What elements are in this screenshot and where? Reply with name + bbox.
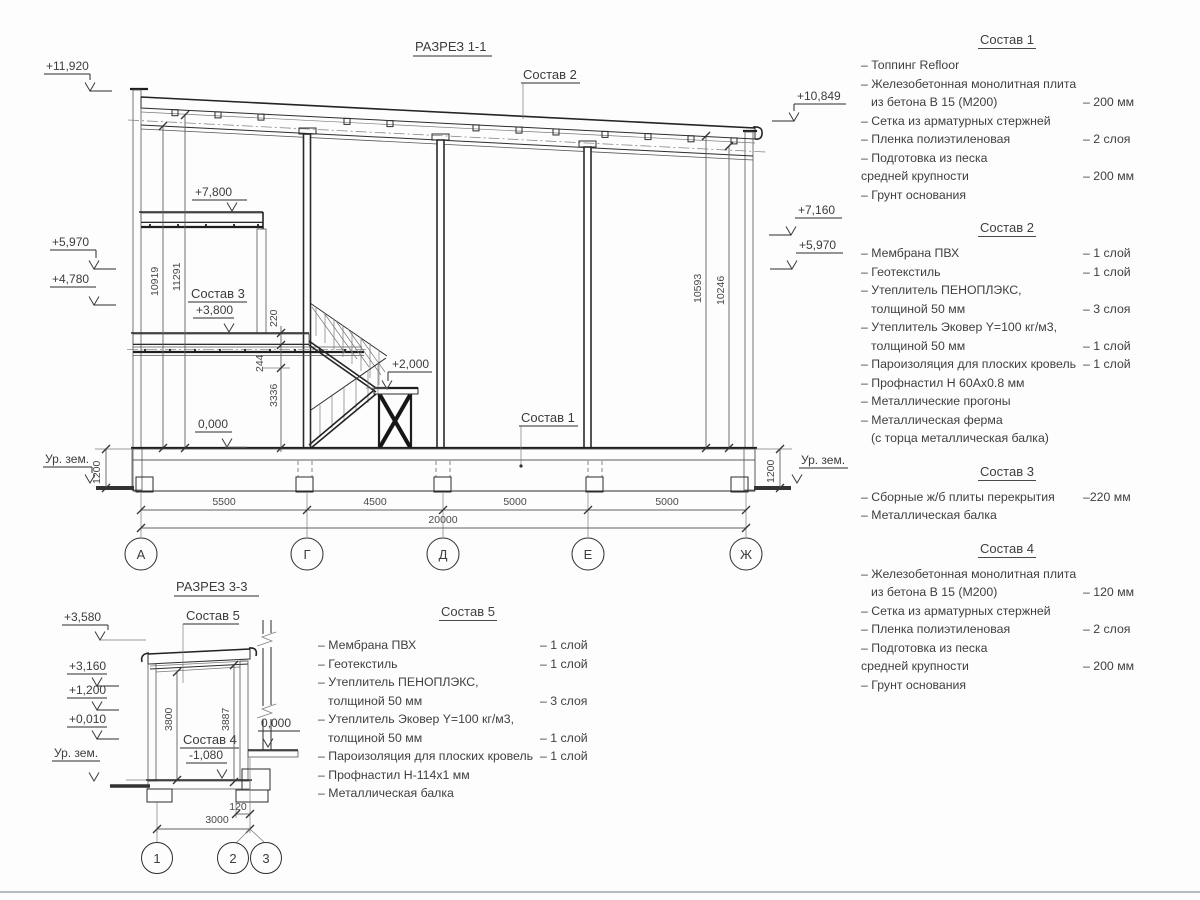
- elevation-mark: +1,200: [67, 683, 119, 710]
- annex-left-wall: [148, 664, 156, 781]
- svg-text:Состав 4: Состав 4: [183, 732, 237, 747]
- svg-text:+10,849: +10,849: [797, 89, 841, 103]
- spec-title: Состав 5: [318, 602, 618, 621]
- svg-text:Состав 5: Состав 5: [186, 608, 240, 623]
- floor-slab: [95, 448, 792, 492]
- spec-item: толщиной 50 мм– 3 слоя: [861, 300, 1153, 319]
- elevation-marks: +11,920 +5,970 +4,780 +10,849 +7,160 +5,…: [43, 59, 848, 483]
- elevation-mark: +7,800: [192, 185, 247, 211]
- dim-3336: 3336: [268, 383, 280, 407]
- elevation-mark: -1,080: [186, 748, 227, 778]
- svg-text:Ур. зем.: Ур. зем.: [801, 453, 845, 467]
- section-1-1: РАЗРЕЗ 1-1: [43, 39, 848, 570]
- spec-block-sostav-2: Состав 2 – Мембрана ПВХ– 1 слой – Геотек…: [861, 218, 1153, 448]
- dim-10593: 10593: [692, 274, 704, 303]
- svg-text:+0,010: +0,010: [69, 712, 106, 726]
- label-sostav-2: Состав 2: [521, 67, 580, 119]
- elevation-mark: +0,010: [67, 712, 119, 739]
- svg-text:+11,920: +11,920: [46, 59, 89, 73]
- elevation-mark: +7,160: [769, 203, 842, 235]
- spec-item: – Пароизоляция для плоских кровель– 1 сл…: [318, 747, 618, 766]
- svg-text:Состав 2: Состав 2: [523, 67, 577, 82]
- spec-item: – Пароизоляция для плоских кровель– 1 сл…: [861, 355, 1153, 374]
- spec-item: – Мембрана ПВХ– 1 слой: [861, 244, 1153, 263]
- spec-title: Состав 4: [861, 539, 1153, 558]
- elevation-mark: +10,849: [772, 89, 846, 121]
- dim-120: 120: [229, 801, 247, 813]
- left-wall: [130, 89, 148, 490]
- dim-3000: 3000: [205, 814, 229, 826]
- svg-text:А: А: [137, 547, 146, 562]
- svg-text:Е: Е: [584, 547, 593, 562]
- spec-item: из бетона В 15 (М200)– 120 мм: [861, 583, 1153, 602]
- spec-item: – Металлические прогоны: [861, 392, 1153, 411]
- elevation-marks-33: +3,580 +3,160 +1,200 +0,010 Ур. зем.: [52, 610, 146, 781]
- label-sostav-4: Состав 4: [180, 732, 239, 748]
- railing-lower: [311, 358, 386, 410]
- elevation-mark: +5,970: [770, 238, 843, 269]
- axis-bubble-e: Е: [572, 538, 604, 570]
- staircase: [309, 303, 418, 448]
- svg-text:+2,000: +2,000: [392, 357, 429, 371]
- svg-text:Ж: Ж: [740, 547, 752, 562]
- spec-item: – Геотекстиль– 1 слой: [861, 263, 1153, 282]
- dim-4500: 4500: [363, 496, 387, 508]
- dim-244: 244: [254, 354, 266, 372]
- spec-item: – Профнастил Н-114х1 мм: [318, 766, 618, 785]
- section-1-1-title: РАЗРЕЗ 1-1: [415, 39, 487, 54]
- landing-support-xbrace: [379, 394, 411, 448]
- dim-10246: 10246: [715, 276, 727, 305]
- bottom-dimensions-33: 120 3000: [153, 758, 264, 843]
- dim-10919: 10919: [149, 267, 161, 296]
- svg-text:Ур. зем.: Ур. зем.: [45, 452, 89, 466]
- section-3-3-title: РАЗРЕЗ 3-3: [176, 579, 248, 594]
- svg-text:+5,970: +5,970: [52, 235, 89, 249]
- elevation-mark: +2,000: [366, 357, 432, 389]
- spec-item: – Профнастил Н 60Ах0.8 мм: [861, 374, 1153, 393]
- svg-text:Г: Г: [303, 547, 310, 562]
- axis-bubble-a: А: [125, 538, 157, 570]
- svg-text:+4,780: +4,780: [52, 272, 89, 286]
- svg-text:+3,800: +3,800: [196, 303, 233, 317]
- spec-item: – Топпинг Refloor: [861, 56, 1153, 75]
- axis-bubble-2: 2: [218, 843, 249, 874]
- spec-item: – Мембрана ПВХ– 1 слой: [318, 636, 618, 655]
- spec-item: – Утеплитель Эковер Y=100 кг/м3,: [318, 710, 618, 729]
- spec-block-sostav-1: Состав 1 – Топпинг Refloor – Железобетон…: [861, 30, 1153, 204]
- dim-3887: 3887: [220, 707, 232, 731]
- ground-level-mark: Ур. зем.: [52, 746, 100, 781]
- svg-text:0,000: 0,000: [261, 716, 291, 730]
- spec-item: – Металлическая ферма: [861, 411, 1153, 430]
- columns: [299, 128, 596, 448]
- svg-text:Состав 1: Состав 1: [521, 410, 575, 425]
- spec-title: Состав 1: [861, 30, 1153, 49]
- svg-text:2: 2: [229, 851, 236, 866]
- spec-item: (с торца металлическая балка): [861, 429, 1153, 448]
- spec-item: из бетона В 15 (М200)– 200 мм: [861, 93, 1153, 112]
- label-sostav-3: Состав 3: [188, 286, 247, 302]
- axis-bubbles-33: 1 2 3: [142, 843, 282, 874]
- spec-item: – Металлическая балка: [318, 784, 618, 803]
- dim-11291: 11291: [171, 262, 183, 291]
- axis-bubble-3: 3: [251, 843, 282, 874]
- spec-item: толщиной 50 мм– 3 слоя: [318, 692, 618, 711]
- sheet-frame-line: [0, 891, 1200, 893]
- stair-flight-lower: [309, 391, 373, 445]
- elevation-mark: 0,000: [258, 716, 300, 747]
- dim-5000: 5000: [655, 496, 679, 508]
- svg-text:0,000: 0,000: [198, 417, 228, 431]
- stair-flight-upper: [309, 341, 376, 388]
- spec-item: – Железобетонная монолитная плита: [861, 565, 1153, 584]
- ground-level-mark: Ур. зем.: [43, 452, 95, 483]
- axis-bubbles: А Г Д Е Ж: [125, 538, 762, 570]
- spec-block-sostav-4: Состав 4 – Железобетонная монолитная пли…: [861, 539, 1153, 695]
- spec-item: – Грунт основания: [861, 186, 1153, 205]
- spec-item: толщиной 50 мм– 1 слой: [861, 337, 1153, 356]
- spec-block-sostav-3: Состав 3 – Сборные ж/б плиты перекрытия–…: [861, 462, 1153, 525]
- bottom-dimensions: 5500 4500 5000 5000 20000: [137, 493, 750, 537]
- dim-20000: 20000: [428, 514, 457, 526]
- svg-text:+7,800: +7,800: [195, 185, 232, 199]
- elevation-mark: +3,160: [67, 659, 119, 686]
- spec-item: – Сетка из арматурных стержней: [861, 602, 1153, 621]
- spec-item: – Сетка из арматурных стержней: [861, 112, 1153, 131]
- spec-item: толщиной 50 мм– 1 слой: [318, 729, 618, 748]
- spec-item: – Пленка полиэтиленовая– 2 слоя: [861, 130, 1153, 149]
- svg-text:+3,160: +3,160: [69, 659, 106, 673]
- vertical-dimensions-33: 3800 3887: [163, 661, 238, 786]
- spec-title: Состав 2: [861, 218, 1153, 237]
- right-wall: [743, 131, 757, 490]
- spec-item: – Железобетонная монолитная плита: [861, 75, 1153, 94]
- dim-220: 220: [268, 309, 280, 327]
- svg-text:Состав 3: Состав 3: [191, 286, 245, 301]
- elevation-mark: +4,780: [50, 272, 116, 305]
- spec-item: – Подготовка из песка: [861, 149, 1153, 168]
- elevation-mark: +3,580: [62, 610, 146, 640]
- spec-block-sostav-5: Состав 5 – Мембрана ПВХ– 1 слой – Геотек…: [318, 602, 618, 803]
- spec-item: средней крупности– 200 мм: [861, 657, 1153, 676]
- room-partition-wall: [257, 229, 266, 333]
- spec-title: Состав 3: [861, 462, 1153, 481]
- spec-item: – Сборные ж/б плиты перекрытия–220 мм: [861, 488, 1153, 507]
- axis-bubble-zh: Ж: [730, 538, 762, 570]
- elevation-mark: +3,800: [193, 303, 234, 332]
- spec-item: – Грунт основания: [861, 676, 1153, 695]
- spec-item: – Утеплитель ПЕНОПЛЭКС,: [318, 673, 618, 692]
- elevation-mark: +5,970: [50, 235, 116, 269]
- dim-5500: 5500: [212, 496, 236, 508]
- spec-item: – Металлическая балка: [861, 506, 1153, 525]
- spec-item: средней крупности– 200 мм: [861, 167, 1153, 186]
- section-3-3: РАЗРЕЗ 3-3: [52, 579, 300, 874]
- spec-item: – Подготовка из песка: [861, 639, 1153, 658]
- ground-level-mark: Ур. зем.: [792, 453, 848, 483]
- elevation-mark: 0,000: [195, 417, 247, 447]
- annex-right-wall: [240, 661, 248, 781]
- svg-text:Ур. зем.: Ур. зем.: [54, 746, 98, 760]
- svg-text:3: 3: [262, 851, 269, 866]
- spec-item: – Утеплитель ПЕНОПЛЭКС,: [861, 281, 1153, 300]
- label-sostav-5: Состав 5: [183, 608, 240, 683]
- drawing-sheet: РАЗРЕЗ 1-1: [0, 0, 1200, 900]
- svg-text:-1,080: -1,080: [189, 748, 223, 762]
- foundation-pads: [136, 477, 748, 492]
- spec-item: – Геотекстиль– 1 слой: [318, 655, 618, 674]
- svg-text:+5,970: +5,970: [799, 238, 836, 252]
- svg-text:+3,580: +3,580: [64, 610, 101, 624]
- label-sostav-1: Состав 1: [519, 410, 578, 468]
- svg-text:1: 1: [153, 851, 160, 866]
- svg-text:+1,200: +1,200: [69, 683, 106, 697]
- svg-text:+7,160: +7,160: [798, 203, 835, 217]
- main-floor-slab: [248, 751, 298, 757]
- axis-bubble-d: Д: [427, 538, 459, 570]
- svg-text:Д: Д: [439, 547, 448, 562]
- elevation-mark: +11,920: [44, 59, 112, 91]
- annex-structure: [110, 620, 298, 802]
- dim-5000: 5000: [503, 496, 527, 508]
- spec-item: – Пленка полиэтиленовая– 2 слоя: [861, 620, 1153, 639]
- dim-1200-right: 1200: [765, 459, 777, 483]
- spec-item: – Утеплитель Эковер Y=100 кг/м3,: [861, 318, 1153, 337]
- dim-1200-left: 1200: [91, 460, 103, 484]
- spec-panel-right: Состав 1 – Топпинг Refloor – Железобетон…: [861, 30, 1153, 694]
- dim-3800: 3800: [163, 707, 175, 731]
- roof: [128, 97, 766, 160]
- axis-bubble-1: 1: [142, 843, 173, 874]
- axis-bubble-g: Г: [291, 538, 323, 570]
